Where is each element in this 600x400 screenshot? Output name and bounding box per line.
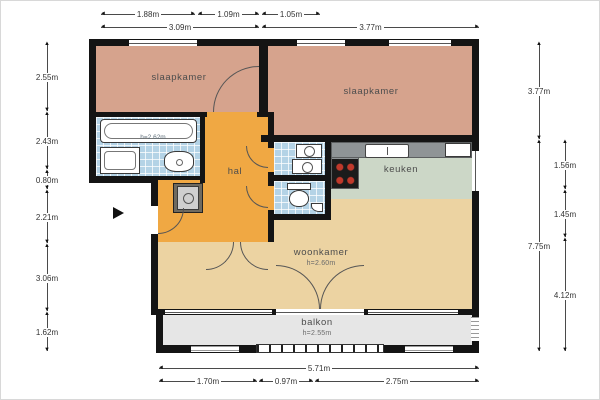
wall-between-bedrooms [259, 39, 268, 117]
boiler [296, 144, 322, 158]
label-living: woonkamer h=2.60m [271, 248, 371, 269]
dim-right-inner-3: 4.12m [547, 239, 583, 351]
wall-bedroomright-kitchen [261, 135, 479, 142]
dim-top-total-left: 3.09m [101, 22, 259, 32]
label-bedroom-right: slaapkamer [311, 87, 431, 97]
dim-left-1: 2.55m [29, 43, 65, 111]
stove [332, 159, 358, 188]
toilet-tank [287, 183, 311, 190]
dim-bottom-total: 5.71m [159, 363, 479, 373]
balcony-panel-right [405, 346, 453, 352]
wall-utility-toilet [268, 175, 331, 181]
wall-toilet-living [268, 214, 331, 220]
balcony-vent-right [471, 317, 479, 341]
balcony-ceiling-height: h=2.55m [277, 329, 357, 339]
dim-left-5: 3.06m [29, 245, 65, 311]
fridge [445, 143, 471, 157]
dim-right-inner-2: 1.45m [547, 191, 583, 237]
kitchen-sink [365, 144, 409, 158]
balcony-panel-left [191, 346, 239, 352]
dim-right-inner-1: 1.56m [547, 141, 583, 189]
washing-machine [177, 186, 199, 210]
door-gap-toilet [268, 186, 274, 210]
door-gap-utility [268, 148, 274, 172]
floor-plan: slaapkamer slaapkamer hal keuken woonkam… [0, 0, 600, 400]
door-gap-bedroom-left [207, 112, 257, 117]
window-bedroom-right-1 [297, 40, 345, 46]
bathroom-sink [164, 151, 194, 172]
window-bedroom-left [129, 40, 197, 46]
living-ceiling-height: h=2.60m [271, 259, 371, 269]
window-living-balcony-right [368, 310, 458, 314]
dim-right-outer-1: 3.77m [521, 43, 557, 139]
window-kitchen [472, 151, 479, 191]
dim-left-6: 1.62m [29, 313, 65, 351]
label-balcony: balkon h=2.55m [277, 318, 357, 339]
dim-top-2: 1.09m [198, 9, 259, 19]
dim-left-4: 2.21m [29, 191, 65, 243]
entrance-arrow-icon [113, 207, 124, 219]
dim-left-2: 2.43m [29, 113, 65, 169]
wall-bath-hall [200, 112, 205, 183]
dim-left-3: 0.80m [29, 171, 65, 189]
label-kitchen: keuken [361, 165, 441, 175]
dim-top-3: 1.05m [262, 9, 320, 19]
dryer [292, 159, 322, 174]
label-bedroom-left: slaapkamer [119, 73, 239, 83]
dim-top-total-right: 3.77m [262, 22, 479, 32]
bathroom-ceiling-height: h=2.62m [123, 134, 183, 141]
dim-bottom-2: 0.97m [259, 376, 313, 386]
room-hall-upper [205, 117, 268, 242]
balcony-railing [256, 344, 384, 353]
dim-top-1: 1.88m [101, 9, 195, 19]
label-hall: hal [215, 167, 255, 177]
toilet-bowl [289, 190, 309, 207]
door-gap-entrance [151, 206, 158, 234]
dim-bottom-1: 1.70m [159, 376, 257, 386]
window-living-balcony-left [165, 310, 272, 314]
window-bedroom-right-2 [389, 40, 451, 46]
balcony-door-frame [276, 309, 364, 315]
dim-bottom-3: 2.75m [315, 376, 479, 386]
shower-tray [100, 147, 140, 174]
